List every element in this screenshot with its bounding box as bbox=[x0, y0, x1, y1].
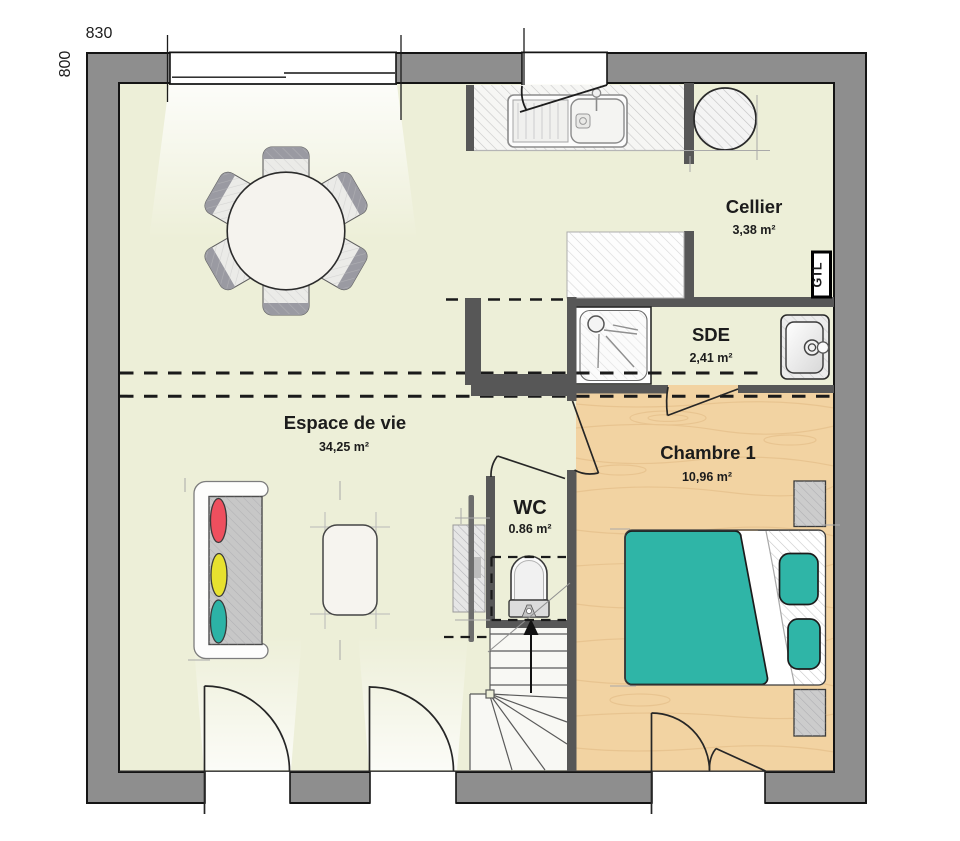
svg-text:10,96 m²: 10,96 m² bbox=[682, 470, 732, 484]
svg-text:34,25 m²: 34,25 m² bbox=[319, 440, 369, 454]
svg-text:Cellier: Cellier bbox=[726, 196, 783, 217]
svg-text:Espace de vie: Espace de vie bbox=[284, 412, 406, 433]
svg-text:SDE: SDE bbox=[692, 324, 730, 345]
svg-text:3,38 m²: 3,38 m² bbox=[732, 223, 775, 237]
svg-text:830: 830 bbox=[86, 25, 113, 42]
svg-text:WC: WC bbox=[513, 497, 546, 519]
svg-text:GTL: GTL bbox=[811, 262, 825, 287]
svg-text:2,41 m²: 2,41 m² bbox=[689, 351, 732, 365]
svg-text:Chambre 1: Chambre 1 bbox=[660, 442, 756, 463]
svg-text:0.86 m²: 0.86 m² bbox=[508, 522, 551, 536]
svg-text:800: 800 bbox=[57, 51, 74, 78]
